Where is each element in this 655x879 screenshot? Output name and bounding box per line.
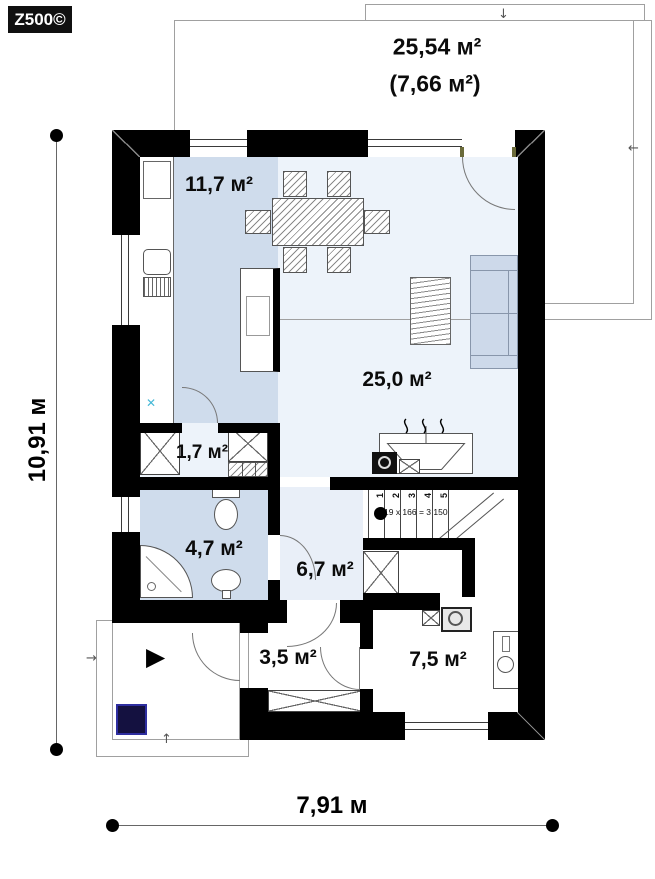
wall-bathroom-east-2 (268, 580, 280, 600)
wardrobe-area-label: 1,7 м² (176, 442, 228, 464)
wall-landing (462, 538, 475, 597)
utility-boiler-ring (448, 611, 463, 626)
wardrobe-cabinet-left (140, 427, 180, 475)
stairs-formula: 19 x 166 = 3 150 (384, 507, 448, 517)
wall-hall-south-1 (268, 600, 287, 623)
wall-utility-north (363, 593, 440, 610)
wall-bathroom-east-1 (268, 487, 280, 535)
dining-chair (327, 171, 351, 197)
hall-area-label: 6,7 м² (296, 558, 354, 582)
water-point-icon: ✕ (146, 396, 156, 410)
stairs-edge (368, 490, 369, 538)
corner-mark-top-right (517, 130, 545, 157)
height-dimension-label: 10,91 м (24, 398, 52, 482)
wall-top-2 (247, 130, 368, 157)
arrow-left-icon: ← (628, 142, 639, 155)
terrace-door-post-right (512, 147, 516, 157)
bathroom-sink-base (222, 590, 231, 599)
cell-divider (255, 463, 256, 476)
corner-mark-bottom-right (517, 712, 545, 740)
bathroom-sink (211, 569, 241, 592)
bathroom-area-label: 4,7 м² (185, 537, 243, 561)
terrace-area-alt-label: (7,66 м²) (389, 71, 480, 98)
vestibule-utility-door-arc (320, 647, 360, 690)
cell-divider (242, 463, 243, 476)
wall-vestibule-east-1 (360, 623, 373, 649)
wall-left-2 (112, 325, 140, 497)
z500-logo: Z500© (8, 6, 72, 33)
sofa-armrest-line (471, 270, 517, 271)
sofa-armrest-line (471, 355, 517, 356)
utility-heater-circle (497, 656, 514, 673)
utility-vent-box (422, 610, 440, 626)
porch-mat (116, 704, 147, 735)
dimension-dot (546, 819, 559, 832)
terrace-area-label: 25,54 м² (393, 34, 482, 61)
wall-under-stairs (363, 538, 475, 550)
wall-wardrobe-north-1 (140, 423, 182, 433)
kitchen-fridge (143, 161, 171, 199)
sofa-back-line (508, 270, 509, 355)
porch-arrow-up-icon: ↑ (161, 733, 172, 746)
stair-step-number: 3 (407, 493, 417, 498)
rug (410, 277, 451, 345)
dimension-dot (106, 819, 119, 832)
dining-chair (245, 210, 271, 234)
kitchen-area-label: 11,7 м² (185, 173, 253, 197)
dimension-dot (50, 129, 63, 142)
hall-vestibule-door-arc (287, 603, 337, 647)
stair-step-number: 1 (375, 493, 385, 498)
window-bathroom-west (112, 497, 140, 532)
wall-vestibule-east-2 (360, 689, 373, 712)
hall-wardrobe-cabinet (363, 551, 399, 595)
wall-porch-1 (240, 600, 268, 633)
wardrobe-shoe-cells (228, 462, 268, 477)
kitchen-sink (143, 249, 171, 275)
dining-chair (364, 210, 390, 234)
fireplace-hearth-ring (378, 456, 391, 469)
sofa (470, 255, 518, 369)
kitchen-island-sink (246, 296, 270, 336)
window-kitchen-north (190, 130, 247, 157)
wall-living-south (330, 477, 545, 490)
vestibule-wardrobe (268, 690, 362, 712)
utility-area-label: 7,5 м² (409, 648, 467, 672)
dimension-dot (50, 743, 63, 756)
dining-chair (283, 171, 307, 197)
stair-step-number: 2 (391, 493, 401, 498)
shower-drain (147, 582, 156, 591)
toilet-bowl (214, 499, 238, 530)
dining-table (272, 198, 364, 246)
kitchen-stove (143, 277, 171, 297)
porch-arrow-right-icon: → (86, 652, 97, 665)
terrace-inner-line-horizontal (545, 303, 633, 304)
dimension-line-horizontal (112, 825, 553, 826)
sofa-seat-line (471, 313, 517, 314)
stair-step-number: 5 (439, 493, 449, 498)
arrow-down-icon: ↓ (498, 8, 509, 21)
floor-plan: Z500© ↓ ← 25,54 м² (7,66 м²) (0, 0, 655, 879)
dining-chair (283, 247, 307, 273)
dining-chair (327, 247, 351, 273)
wall-bathroom-north (112, 477, 280, 490)
window-utility-south (405, 712, 488, 740)
terrace-inner-line-vertical (633, 20, 634, 304)
stairs-start-dot (374, 507, 387, 520)
window-living-north (368, 130, 462, 157)
wall-hall-south-2 (340, 600, 373, 623)
window-kitchen-west (112, 235, 140, 325)
width-dimension-label: 7,91 м (296, 792, 367, 820)
fireplace-vent-box (399, 459, 420, 474)
living-area-label: 25,0 м² (362, 368, 431, 392)
entrance-arrow-icon: ▶ (146, 644, 165, 670)
wall-porch-2 (240, 688, 268, 740)
vestibule-area-label: 3,5 м² (259, 646, 317, 670)
wall-left-1 (112, 157, 140, 235)
terrace-door-post-left (460, 147, 464, 157)
corner-mark-top-left (112, 130, 140, 157)
stair-step-number: 4 (423, 493, 433, 498)
dimension-line-vertical (56, 135, 57, 749)
wall-right (518, 130, 545, 740)
terrace-door-opening (462, 130, 515, 157)
utility-heater-pipe (502, 636, 510, 652)
